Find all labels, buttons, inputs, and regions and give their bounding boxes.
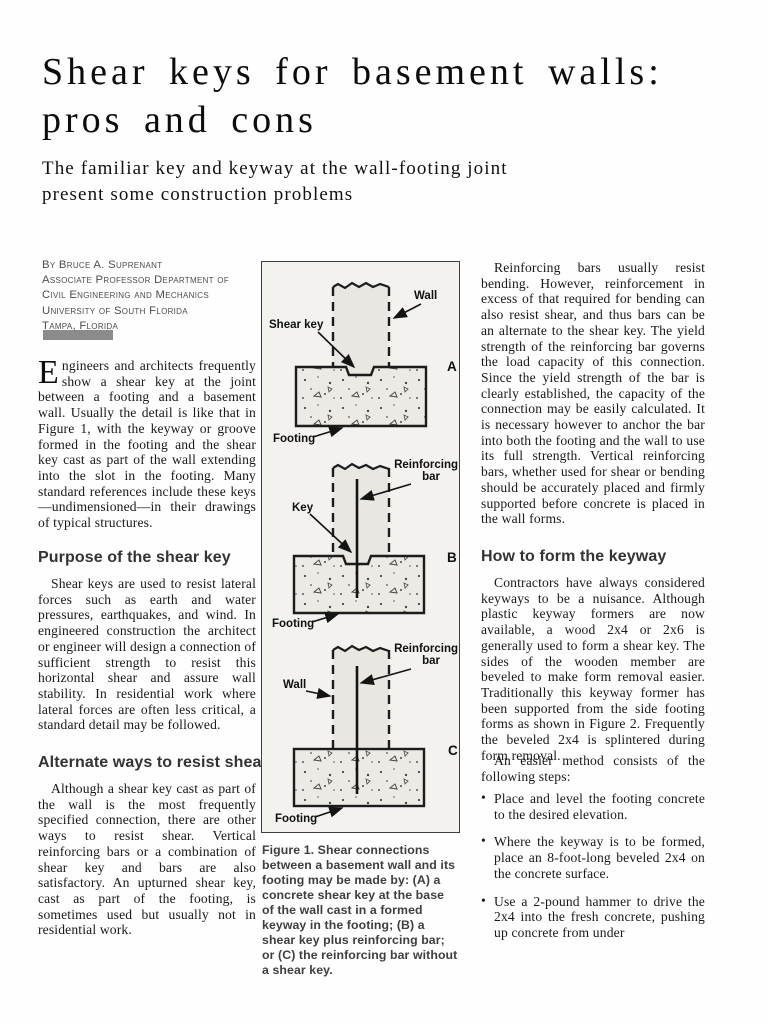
heading-purpose: Purpose of the shear key xyxy=(38,549,231,567)
byline-author: By Bruce A. Suprenant xyxy=(42,258,252,273)
label-bar-c: bar xyxy=(422,655,440,667)
label-wall-c: Wall xyxy=(283,679,306,691)
byline-role: Associate Professor Department of xyxy=(42,273,252,288)
intro-text: ngineers and architects frequently show … xyxy=(38,358,256,530)
diagram-c: Reinforcing bar Wall Footing C xyxy=(275,643,458,825)
label-key: Key xyxy=(292,502,314,514)
diagram-b: Reinforcing bar Key Footing B xyxy=(272,459,458,630)
article-subtitle: The familiar key and keyway at the wall-… xyxy=(42,156,542,208)
figure-1-box: Shear key Wall Footing A Reinforcing ba xyxy=(261,261,460,833)
byline: By Bruce A. Suprenant Associate Professo… xyxy=(42,258,252,334)
label-footing-c: Footing xyxy=(275,813,317,825)
byline-university: University of South Florida xyxy=(42,304,252,319)
label-bar-b: bar xyxy=(422,471,440,483)
label-reinforcing-c: Reinforcing xyxy=(394,643,458,655)
reinforcing-paragraph: Reinforcing bars usually resist bending.… xyxy=(481,260,705,527)
article-title: Shear keys for basement walls: pros and … xyxy=(42,48,742,144)
steps-intro-paragraph: An easier method consists of the followi… xyxy=(481,753,705,784)
purpose-paragraph: Shear keys are used to resist lateral fo… xyxy=(38,576,256,733)
article-subtitle-line2: present some construction problems xyxy=(42,182,542,208)
shear-key-diagram: Shear key Wall Footing A Reinforcing ba xyxy=(262,262,458,831)
label-reinforcing-b: Reinforcing xyxy=(394,459,458,471)
heading-alternate: Alternate ways to resist shear xyxy=(38,754,268,772)
article-title-line1: Shear keys for basement walls: xyxy=(42,48,742,96)
diagram-a: Shear key Wall Footing A xyxy=(269,283,457,445)
label-shear-key: Shear key xyxy=(269,319,324,331)
label-footing-a: Footing xyxy=(273,433,315,445)
list-item: Place and level the footing concrete to … xyxy=(481,791,705,822)
magazine-page: Shear keys for basement walls: pros and … xyxy=(0,0,768,1024)
diagram-letter-a: A xyxy=(447,359,457,374)
list-item: Use a 2-pound hammer to drive the 2x4 in… xyxy=(481,894,705,941)
heading-keyway: How to form the keyway xyxy=(481,548,666,566)
contractors-paragraph: Contractors have always considered keywa… xyxy=(481,575,705,763)
diagram-letter-b: B xyxy=(447,550,457,565)
list-item: Where the keyway is to be formed, place … xyxy=(481,834,705,881)
figure-1-caption: Figure 1. Shear connections between a ba… xyxy=(262,843,459,978)
article-title-line2: pros and cons xyxy=(42,96,742,144)
byline-divider-bar xyxy=(43,330,113,340)
label-footing-b: Footing xyxy=(272,618,314,630)
article-subtitle-line1: The familiar key and keyway at the wall-… xyxy=(42,156,542,182)
alternate-paragraph: Although a shear key cast as part of the… xyxy=(38,781,256,938)
byline-department: Civil Engineering and Mechanics xyxy=(42,288,252,303)
label-wall-a: Wall xyxy=(414,290,437,302)
dropcap: E xyxy=(38,358,62,387)
diagram-letter-c: C xyxy=(448,743,458,758)
intro-paragraph: Engineers and architects frequently show… xyxy=(38,358,256,531)
steps-list: Place and level the footing concrete to … xyxy=(481,791,705,953)
